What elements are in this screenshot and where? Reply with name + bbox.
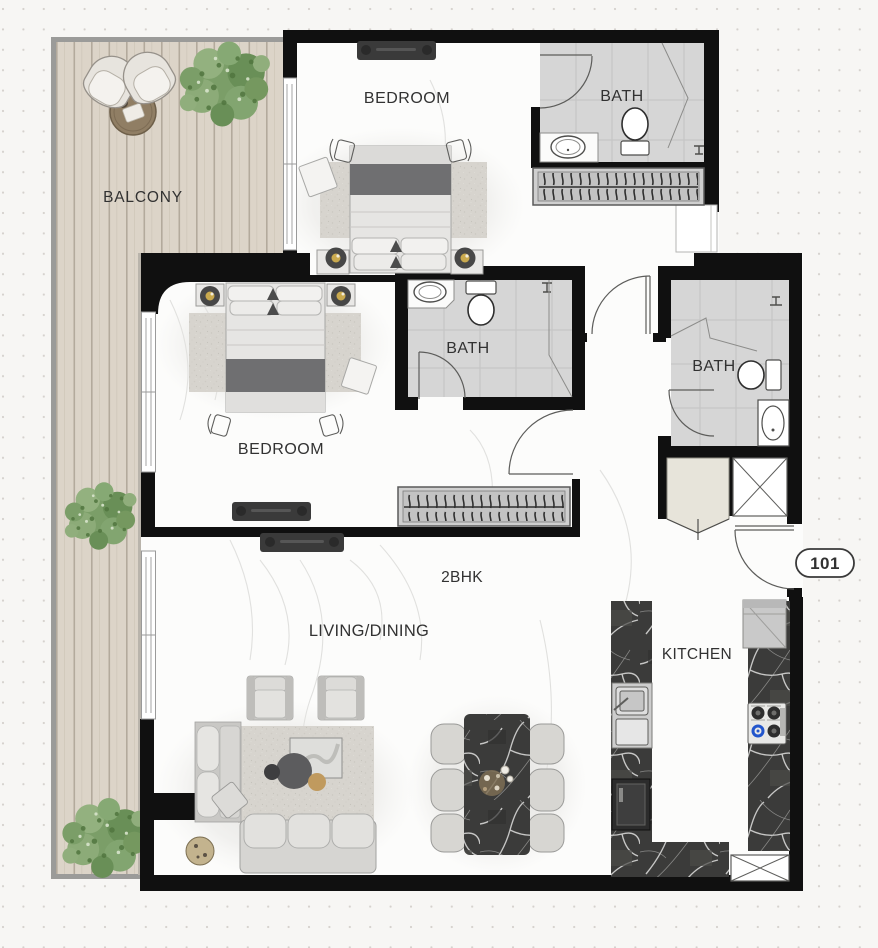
svg-text:BEDROOM: BEDROOM — [364, 90, 450, 107]
svg-text:LIVING/DINING: LIVING/DINING — [309, 622, 429, 640]
svg-text:BATH: BATH — [692, 358, 735, 375]
svg-text:BATH: BATH — [446, 340, 489, 357]
svg-text:101: 101 — [810, 554, 840, 573]
svg-text:2BHK: 2BHK — [441, 569, 483, 586]
svg-text:BATH: BATH — [600, 88, 643, 105]
svg-text:KITCHEN: KITCHEN — [662, 646, 732, 663]
svg-text:BEDROOM: BEDROOM — [238, 441, 324, 458]
svg-text:BALCONY: BALCONY — [103, 189, 183, 206]
